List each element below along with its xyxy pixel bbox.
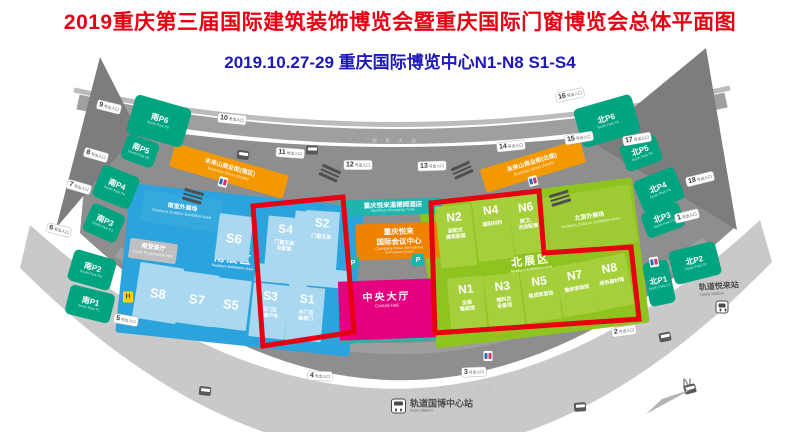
parking-北P2: 北P2North Park P2 xyxy=(668,241,723,286)
gate-12: 12号出入口 xyxy=(344,161,372,170)
hall-N4-sublabel: 遮阳材料 xyxy=(482,220,503,229)
gate-2: 2号出入口 xyxy=(611,325,636,337)
gate-number: 15 xyxy=(567,135,576,143)
gate-suffix: 号出入口 xyxy=(90,152,106,161)
hall-N3-label: N3 xyxy=(494,279,511,293)
expo-floorplan-poster: 2019重庆第三届国际建筑装饰博览会暨重庆国际门窗博览会总体平面图 2019.1… xyxy=(0,0,800,432)
gate-4: 4号出入口 xyxy=(308,371,332,381)
hall-S2: S2门窗五金 xyxy=(302,210,340,272)
hall-N8-label: N8 xyxy=(601,261,618,276)
gate-number: 10 xyxy=(220,114,228,122)
escalator-icon xyxy=(319,164,342,183)
gate-suffix: 号出入口 xyxy=(355,164,370,169)
hall-S8-label: S8 xyxy=(149,285,167,300)
hall-N1-label: N1 xyxy=(458,282,474,295)
expo-metro-station: 轨道国博中心站 Expo Station xyxy=(391,399,473,414)
south-registration-label-en: South Registration Hall xyxy=(132,250,173,260)
hall-S7-label: S7 xyxy=(188,291,206,306)
hotel-stop-marker: H xyxy=(123,292,133,303)
central-hall-label-en: Central Hall xyxy=(375,303,399,309)
central-hall: 中央大厅 Central Hall xyxy=(338,278,436,343)
hall-N8-sublabel: 绿色建材馆 xyxy=(599,277,625,288)
hall-S4-sublabel: 门窗五金 及配套 xyxy=(274,239,295,253)
gate-10: 10号出入口 xyxy=(218,113,247,125)
hall-S1-sublabel: 木门及 套装门 xyxy=(298,309,314,323)
gate-3: 3号出入口 xyxy=(462,367,486,377)
gate-suffix: 号出入口 xyxy=(697,175,713,184)
gate-suffix: 号出入口 xyxy=(73,184,89,193)
road-name-top: 悦来大道 xyxy=(372,138,424,145)
gate-7: 7号出入口 xyxy=(66,179,92,194)
gate-suffix: 号出入口 xyxy=(228,117,244,124)
gate-suffix: 号出入口 xyxy=(682,212,698,221)
toilet-female-mark xyxy=(223,179,227,185)
toilet-icon xyxy=(649,256,660,267)
site-map: 南室外展场 Southern Outdoor Exhibition Area 北… xyxy=(0,0,800,432)
hall-S3-label: S3 xyxy=(263,289,279,302)
toilet-female-mark xyxy=(489,353,492,359)
gate-number: 4 xyxy=(310,372,314,379)
gate-number: 13 xyxy=(420,163,428,170)
toilet-icon xyxy=(484,351,493,361)
hall-S4-label: S4 xyxy=(278,222,294,235)
metro-icon xyxy=(391,399,406,414)
hall-S1-label: S1 xyxy=(299,292,315,305)
parking-南P1: 南P1South Park P1 xyxy=(64,284,116,324)
hall-N4-label: N4 xyxy=(482,203,499,217)
hall-N6-sublabel: 厨卫、 洗浴配套 xyxy=(517,217,539,232)
toilet-female-mark xyxy=(654,258,658,264)
gate-13: 13号出入口 xyxy=(418,161,446,171)
gate-number: 12 xyxy=(346,162,354,169)
hall-N3: N3辅料及 设备馆 xyxy=(483,272,525,328)
parking-南P3: 南P3South Park P3 xyxy=(81,202,126,244)
hall-S2-label: S2 xyxy=(315,217,330,230)
central-hall-label: 中央大厅 xyxy=(362,287,410,304)
gate-11: 11号出入口 xyxy=(276,148,304,159)
gate-suffix: 号出入口 xyxy=(286,151,301,157)
hall-N5-sublabel: 集成家居馆 xyxy=(528,290,554,300)
hall-N1-sublabel: 全屋 整装馆 xyxy=(459,299,475,313)
hall-S2-sublabel: 门窗五金 xyxy=(311,233,331,241)
hall-N2: N2装配式 建筑配套 xyxy=(435,203,477,268)
bus-icon xyxy=(683,383,697,395)
parking-badge-west: P xyxy=(347,257,359,269)
gate-number: 11 xyxy=(278,149,286,156)
gate-8: 8号出入口 xyxy=(83,147,109,162)
yuelai-metro-station: 轨道悦来站 Yuelai Station xyxy=(699,281,740,297)
hall-N7-sublabel: 整体家装馆 xyxy=(564,284,590,294)
toilet-female-mark xyxy=(533,177,537,183)
convention-center: 重庆悦来 国际会议中心 Chongqing Yuelai Internation… xyxy=(355,222,442,261)
hall-S3: S3铝门及 配套户外 xyxy=(248,282,289,339)
gate-suffix: 号出入口 xyxy=(508,143,524,150)
gate-suffix: 号出入口 xyxy=(619,328,635,335)
gate-suffix: 号出入口 xyxy=(315,374,330,380)
hall-S6: S6 xyxy=(214,213,253,263)
hall-N2-label: N2 xyxy=(446,210,463,224)
toilet-icon xyxy=(217,176,228,188)
escalator-icon xyxy=(451,161,474,180)
hall-N7-label: N7 xyxy=(566,268,583,282)
gate-14: 14号出入口 xyxy=(497,140,526,152)
gate-suffix: 号出入口 xyxy=(567,91,583,99)
metro-icon xyxy=(716,301,729,314)
gate-number: 3 xyxy=(464,369,468,376)
hall-S5: S5 xyxy=(210,277,252,331)
gate-suffix: 号出入口 xyxy=(103,104,119,113)
gate-suffix: 号出入口 xyxy=(429,164,444,170)
gate-9: 9号出入口 xyxy=(96,100,122,115)
hall-N6-label: N6 xyxy=(517,200,534,214)
bus-icon xyxy=(306,146,318,155)
hall-S5-label: S5 xyxy=(222,297,239,312)
bus-icon xyxy=(658,331,672,342)
hall-S6-label: S6 xyxy=(225,231,242,246)
gate-number: 14 xyxy=(499,143,507,151)
gate-number: 18 xyxy=(688,177,697,186)
gate-18: 18号出入口 xyxy=(685,171,714,187)
bus-icon xyxy=(236,150,249,161)
hall-N3-sublabel: 辅料及 设备馆 xyxy=(496,296,512,310)
road-name-bottom: 国博大道 xyxy=(475,381,519,390)
hall-S3-sublabel: 铝门及 配套户外 xyxy=(258,306,279,321)
toilet-male-mark xyxy=(485,353,488,359)
gate-suffix: 号出入口 xyxy=(120,318,136,326)
hall-S1: S1木门及 套装门 xyxy=(287,286,326,343)
hall-S4: S4门窗五金 及配套 xyxy=(263,216,304,279)
hall-N1: N1全屋 整装馆 xyxy=(447,276,487,331)
expo-station-label-en: Expo Station xyxy=(410,409,433,413)
parking-badge-east: P xyxy=(412,254,424,266)
gate-number: 16 xyxy=(558,92,567,100)
wyndham-hotel-bar: 重庆悦来温德姆酒店 Wyndham Chongqing Yuelai xyxy=(344,197,442,216)
bus-icon xyxy=(199,386,212,396)
gate-suffix: 号出入口 xyxy=(469,370,484,376)
bus-icon xyxy=(574,402,587,412)
gate-suffix: 号出入口 xyxy=(53,227,69,236)
toilet-male-mark xyxy=(650,259,654,265)
yuelai-station-label-en: Yuelai Station xyxy=(699,290,739,297)
hall-N2-sublabel: 装配式 建筑配套 xyxy=(445,227,466,242)
gate-6: 6号出入口 xyxy=(46,223,72,238)
gate-16: 16号出入口 xyxy=(555,88,584,103)
gate-number: 17 xyxy=(625,136,634,144)
hall-N5-label: N5 xyxy=(531,274,548,288)
hotel-label-en: Wyndham Chongqing Yuelai xyxy=(371,208,415,213)
